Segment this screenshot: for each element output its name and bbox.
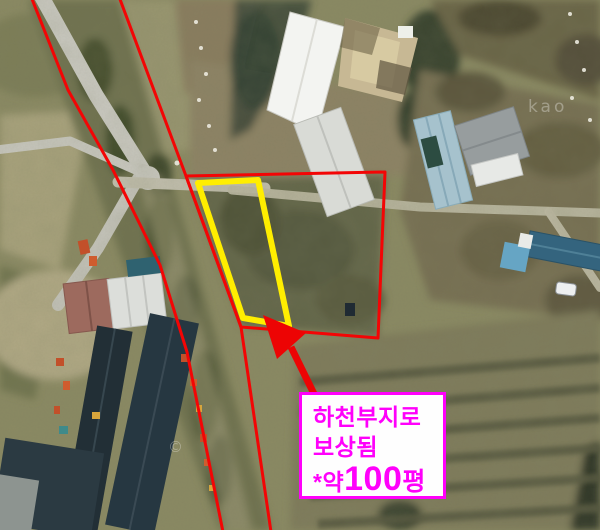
annotation-line-3: *약100평 [313,462,439,499]
aerial-map: © kao 하천부지로 보상됨 *약100평 [0,0,600,530]
red-roof-house [63,278,115,333]
annotation-area-unit: 평 [402,468,426,496]
white-car [555,282,576,297]
annotation-area-number: 100 [344,460,402,498]
annotation-area-prefix: *약 [313,469,344,495]
provider-watermark: kao [528,97,567,117]
annotation-line-2: 보상됨 [313,432,439,462]
copyright-watermark: © [168,438,183,456]
white-hut [518,233,533,249]
annotation-line-1: 하천부지로 [313,402,439,432]
annotation-label-box: 하천부지로 보상됨 *약100평 [299,392,446,499]
